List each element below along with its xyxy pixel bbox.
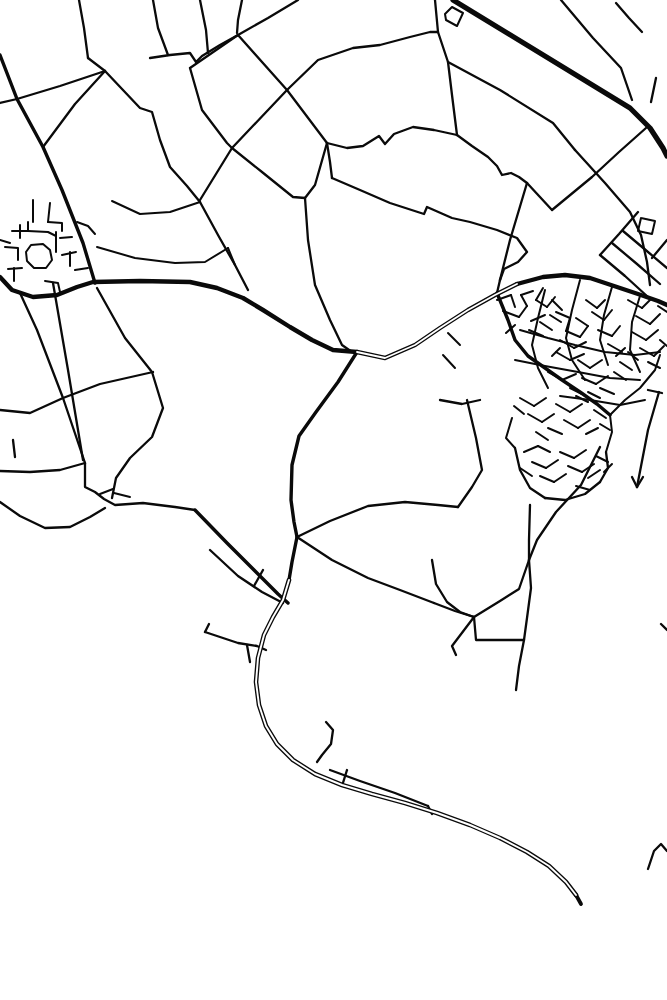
road-town-s-bound-a (506, 418, 515, 448)
town-street-44 (628, 300, 642, 308)
road-town-ns-1 (532, 290, 548, 388)
road-rect-bottom-edge (232, 148, 305, 198)
road-breakwater-diag (637, 392, 659, 487)
town-street-54 (660, 340, 667, 346)
town-street-14 (540, 322, 552, 330)
road-ne-tick (651, 78, 656, 102)
road-bottom-branch (205, 632, 266, 650)
road-top-vertical-3 (200, 0, 208, 53)
road-village-st-14 (75, 268, 88, 270)
road-breakwater-fork-a (632, 477, 637, 487)
town-street-41 (552, 348, 560, 356)
town-street-73 (532, 462, 546, 468)
road-bottom-branch-stub (247, 645, 250, 662)
town-street-13 (552, 300, 562, 310)
town-street-75 (540, 476, 554, 482)
road-sw-se-connector (297, 502, 458, 537)
town-street-15 (556, 312, 570, 318)
town-street-72 (538, 446, 550, 452)
town-street-32 (608, 344, 622, 352)
road-se-east-slope (529, 447, 600, 560)
road-v-notch-west (527, 183, 552, 210)
road-main-south-neck (289, 537, 297, 580)
road-sw-long-diag-a (20, 293, 85, 463)
town-street-58 (528, 414, 542, 422)
road-village-st-16 (0, 240, 10, 243)
road-hwy-stub-top (435, 0, 438, 32)
town-street-60 (548, 428, 562, 434)
road-loop-lane (327, 127, 457, 148)
town-street-1 (511, 295, 515, 307)
town-street-3 (519, 306, 527, 317)
road-cluster-bound-e (600, 452, 608, 482)
road-sw-wavy-road (85, 463, 195, 510)
town-street-23 (597, 300, 605, 308)
town-street-66 (586, 428, 598, 434)
road-se-curve-down (432, 560, 474, 617)
road-j-hook (317, 722, 333, 762)
road-village-st-6 (5, 247, 18, 260)
road-se-hook-branch (452, 617, 474, 655)
town-street-55 (658, 306, 667, 312)
town-street-64 (564, 420, 578, 428)
road-town-ns-2 (566, 280, 585, 380)
town-street-57 (534, 398, 546, 406)
road-town-s-bound-b (606, 415, 612, 452)
road-j3-drop (327, 143, 332, 178)
road-hwy-parallel-lane (448, 62, 575, 150)
road-bottom-right-arch (648, 844, 667, 869)
road-village-st-15 (48, 222, 62, 231)
town-street-36 (582, 378, 596, 384)
town-street-38 (600, 388, 614, 394)
road-sw-dash-b (114, 493, 130, 497)
road-village-st-10 (60, 237, 72, 238)
road-town-ew-1 (520, 330, 660, 355)
road-loop-lane-east (457, 135, 527, 183)
road-sw-curve-road (97, 288, 163, 498)
town-street-70 (514, 406, 524, 414)
town-street-31 (590, 360, 602, 368)
road-small-parallelogram (445, 7, 463, 26)
town-street-30 (578, 360, 590, 368)
road-sw-to-main-diag (195, 510, 288, 603)
road-bottom-branch-hook (205, 624, 209, 632)
road-rect-corner-drop (305, 143, 327, 198)
town-street-4 (521, 295, 527, 306)
town-street-46 (636, 316, 650, 324)
road-village-feeder-n (112, 201, 200, 214)
map-poster (0, 0, 667, 1000)
road-main-south-sweep-core (256, 580, 576, 895)
road-center-south-link (305, 198, 352, 352)
town-street-74 (546, 460, 558, 468)
road-breakwater-top-tick (648, 390, 662, 393)
town-street-24 (592, 312, 604, 320)
road-pier-hatch-2 (612, 243, 660, 284)
town-street-18 (580, 326, 588, 337)
town-street-63 (570, 404, 582, 412)
road-sw-horizontal (0, 463, 85, 472)
road-se-up-link (474, 560, 529, 617)
road-mesh-long-diag (105, 71, 200, 202)
town-street-35 (562, 374, 576, 380)
town-street-27 (612, 326, 620, 336)
road-sw-cross-road (0, 372, 153, 413)
road-se-south-drop (516, 640, 524, 690)
road-sw-stub (13, 440, 15, 457)
road-ring-arc-west-core (357, 284, 517, 358)
road-ne-diagonal-b (616, 3, 642, 32)
road-rect-left-edge (190, 68, 232, 148)
town-street-79 (568, 466, 582, 472)
road-ring-arc-east (517, 275, 667, 305)
town-street-56 (520, 398, 534, 406)
road-top-vertical-4 (237, 0, 242, 33)
road-mesh-to-village (200, 202, 248, 290)
road-se-cluster-drop (529, 505, 530, 560)
town-street-17 (566, 331, 580, 337)
road-arc-stub-a (448, 333, 460, 345)
road-rect-top-edge (190, 35, 238, 68)
town-street-61 (536, 432, 548, 440)
town-street-42 (620, 362, 632, 370)
road-junction-link (88, 58, 105, 71)
road-sw-long-diag-b (53, 283, 83, 460)
road-village-st-3 (12, 231, 56, 236)
road-south-companion-lane (210, 550, 283, 603)
road-se-link-tail (434, 603, 474, 617)
town-street-59 (542, 414, 554, 422)
road-sw-dash-a (100, 489, 113, 494)
town-street-48 (632, 332, 646, 340)
road-village-ring (26, 244, 52, 268)
road-sw-lower-wavy (0, 502, 105, 528)
road-cluster-bound-s (545, 482, 600, 500)
road-hwy-parallel-drop (438, 32, 457, 135)
road-top-vertical-2 (153, 0, 168, 55)
road-town-west-slope (458, 400, 482, 507)
road-se-horizontal (474, 617, 524, 640)
road-arc-stub-b (443, 355, 455, 368)
town-street-76 (554, 474, 566, 482)
town-street-10 (550, 315, 561, 322)
road-town-west-lane (440, 400, 480, 404)
road-cluster-bound-w (515, 448, 545, 498)
road-top-diagonal-5 (238, 0, 298, 35)
town-street-69 (600, 424, 610, 430)
road-village-feeder-e (97, 247, 228, 263)
road-pier-edge-tick (652, 240, 667, 258)
map-canvas (0, 0, 667, 1000)
road-village-st-2 (48, 203, 50, 222)
town-street-81 (588, 470, 600, 478)
town-street-22 (586, 300, 597, 308)
town-street-19 (576, 318, 588, 326)
town-street-65 (578, 420, 590, 428)
town-street-45 (642, 298, 652, 308)
road-top-vertical-1 (79, 0, 88, 58)
town-street-62 (556, 404, 570, 412)
town-street-78 (574, 450, 586, 458)
road-se-link-road (297, 537, 434, 603)
road-town-ew-3 (560, 396, 645, 405)
town-street-49 (646, 330, 658, 340)
road-pier-square (638, 218, 655, 234)
town-street-47 (650, 314, 660, 324)
road-nw-town-feeder (332, 178, 527, 280)
town-street-51 (654, 346, 664, 356)
town-street-5 (521, 291, 533, 295)
town-street-28 (556, 352, 570, 360)
road-main-south-upper (291, 352, 357, 537)
town-street-71 (524, 446, 538, 452)
road-right-edge-mark (661, 624, 667, 630)
town-street-77 (560, 452, 574, 458)
road-main-south-sweep-casing (256, 580, 576, 895)
